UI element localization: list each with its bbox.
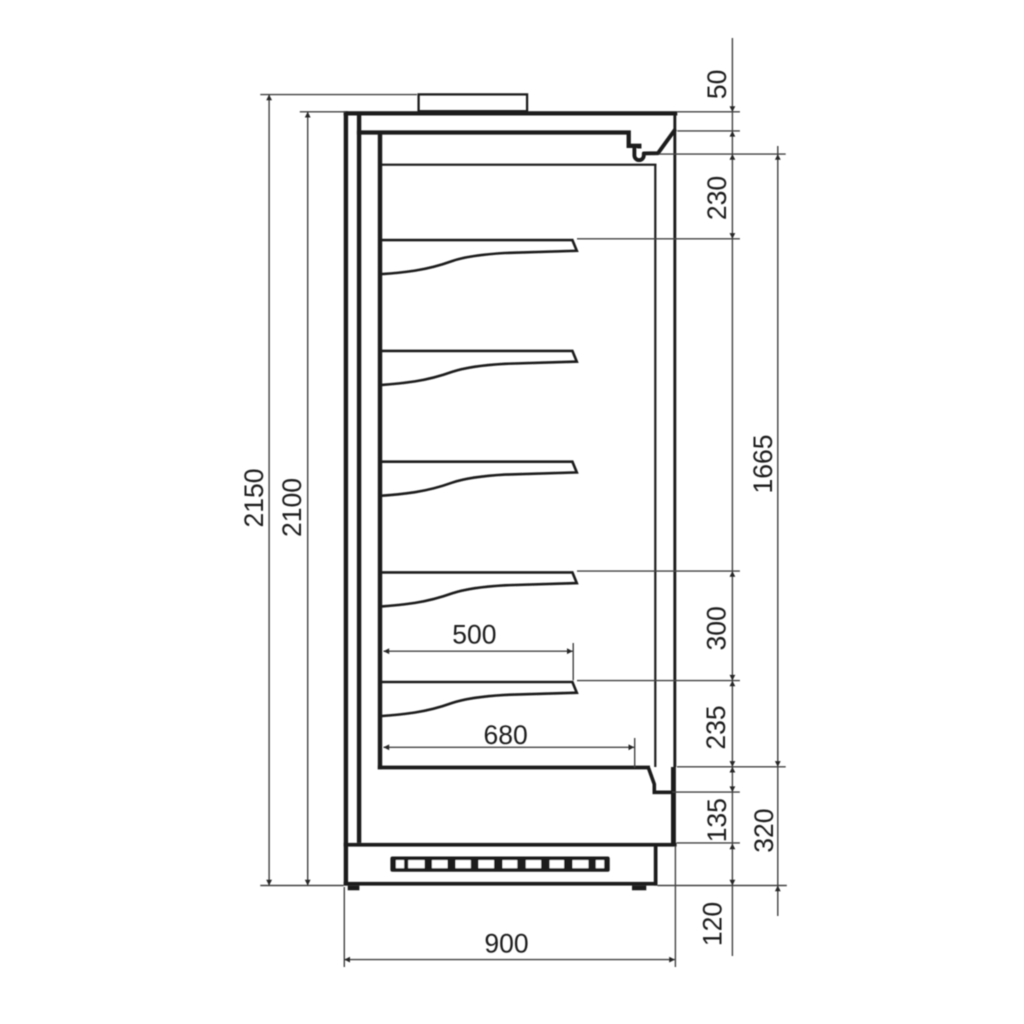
svg-text:500: 500 bbox=[452, 620, 496, 650]
svg-text:680: 680 bbox=[483, 720, 527, 750]
svg-text:135: 135 bbox=[702, 798, 732, 842]
svg-text:50: 50 bbox=[702, 70, 732, 99]
svg-text:235: 235 bbox=[701, 705, 731, 749]
svg-text:120: 120 bbox=[698, 902, 728, 946]
svg-text:230: 230 bbox=[702, 176, 732, 220]
svg-text:900: 900 bbox=[484, 929, 528, 959]
svg-text:2100: 2100 bbox=[277, 478, 307, 537]
svg-text:300: 300 bbox=[701, 606, 731, 650]
svg-text:1665: 1665 bbox=[748, 435, 778, 494]
svg-text:320: 320 bbox=[749, 808, 779, 852]
svg-text:2150: 2150 bbox=[239, 469, 269, 528]
